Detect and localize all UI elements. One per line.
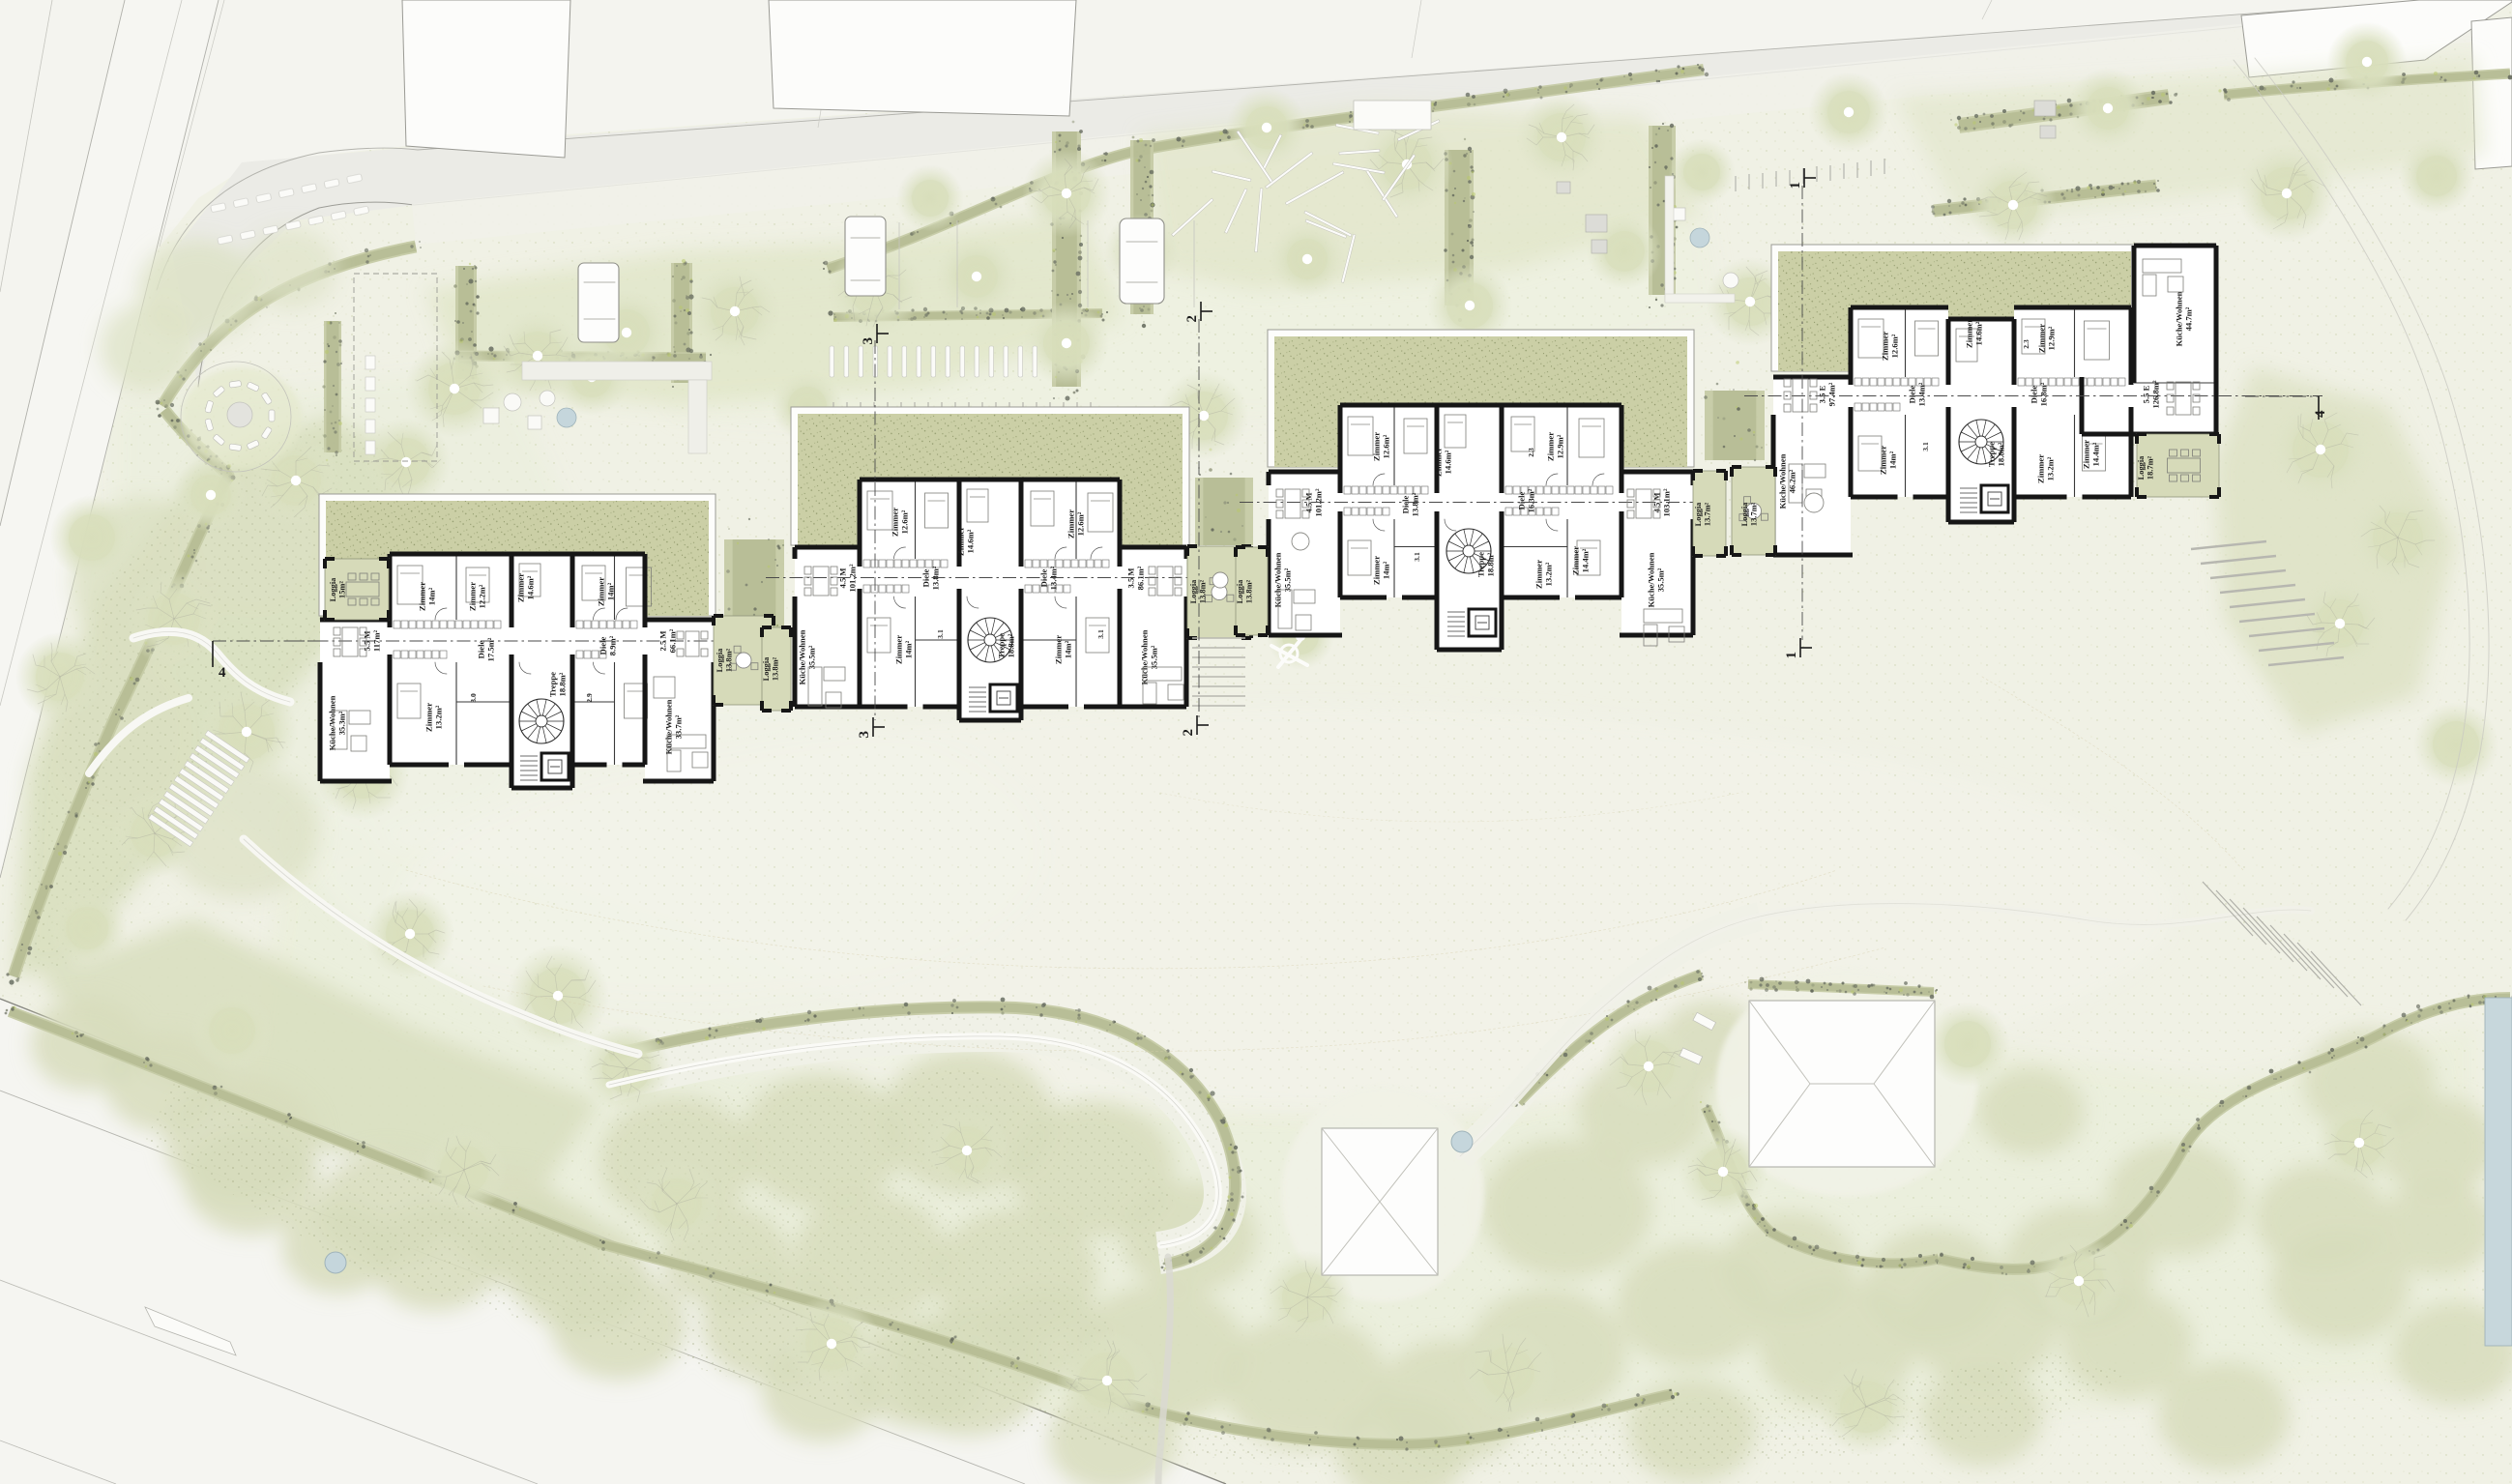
svg-text:13.8m²: 13.8m² xyxy=(725,648,734,672)
svg-text:Zimmer: Zimmer xyxy=(468,582,478,611)
svg-text:2: 2 xyxy=(1184,315,1200,323)
svg-text:Zimmer: Zimmer xyxy=(1965,319,1974,348)
svg-text:3.5 E: 3.5 E xyxy=(1818,385,1827,403)
svg-text:2.3: 2.3 xyxy=(1527,448,1535,457)
svg-text:15m²: 15m² xyxy=(338,581,347,598)
svg-text:18.8m²: 18.8m² xyxy=(558,672,568,696)
svg-text:13.8m²: 13.8m² xyxy=(1199,579,1208,603)
svg-text:97.4m²: 97.4m² xyxy=(1827,382,1837,406)
svg-text:Zimmer: Zimmer xyxy=(424,703,434,732)
svg-text:Zimmer: Zimmer xyxy=(1534,560,1544,589)
svg-text:Zimmer: Zimmer xyxy=(894,635,904,664)
svg-text:Diele: Diele xyxy=(599,637,608,655)
svg-text:13.7m²: 13.7m² xyxy=(1704,502,1712,526)
svg-text:14.6m²: 14.6m² xyxy=(526,575,536,599)
svg-text:Zimmer: Zimmer xyxy=(1881,332,1890,361)
svg-text:3.1: 3.1 xyxy=(936,629,945,639)
svg-text:35.5m²: 35.5m² xyxy=(1283,567,1293,592)
svg-text:18.7m²: 18.7m² xyxy=(2147,455,2155,480)
svg-text:Treppe: Treppe xyxy=(997,633,1007,658)
svg-text:Küche/Wohnen: Küche/Wohnen xyxy=(1647,552,1656,607)
svg-text:13.4m²: 13.4m² xyxy=(1917,382,1927,406)
svg-text:35.5m²: 35.5m² xyxy=(1150,645,1159,669)
svg-text:12.2m²: 12.2m² xyxy=(478,584,487,608)
svg-text:13.2m²: 13.2m² xyxy=(1544,562,1554,586)
svg-text:13.8m²: 13.8m² xyxy=(1245,579,1254,603)
svg-text:2.9: 2.9 xyxy=(585,693,594,703)
svg-text:33.7m²: 33.7m² xyxy=(674,714,684,739)
svg-text:18.8m²: 18.8m² xyxy=(1007,633,1016,657)
svg-text:12.6m²: 12.6m² xyxy=(1076,511,1086,536)
svg-text:13.8m²: 13.8m² xyxy=(772,656,780,681)
svg-text:12.9m²: 12.9m² xyxy=(2047,326,2057,350)
svg-text:Loggia: Loggia xyxy=(1236,579,1244,603)
svg-text:12.6m²: 12.6m² xyxy=(1382,434,1391,458)
svg-text:14m²: 14m² xyxy=(427,587,437,605)
svg-text:Zimmer: Zimmer xyxy=(1571,546,1581,575)
svg-text:5.5 E: 5.5 E xyxy=(2142,385,2151,403)
svg-text:Zimmer: Zimmer xyxy=(1372,432,1382,461)
svg-text:Loggia: Loggia xyxy=(762,656,771,681)
svg-text:3.1: 3.1 xyxy=(1413,552,1421,562)
svg-text:Diele: Diele xyxy=(2030,386,2039,404)
svg-text:Küche/Wohnen: Küche/Wohnen xyxy=(2175,291,2184,346)
svg-text:Zimmer: Zimmer xyxy=(956,527,966,556)
svg-text:8.9m²: 8.9m² xyxy=(608,635,618,655)
svg-text:14m²: 14m² xyxy=(1064,640,1073,658)
svg-text:12.6m²: 12.6m² xyxy=(1890,334,1900,358)
svg-text:13.7m²: 13.7m² xyxy=(1750,502,1759,526)
svg-text:16.8m²: 16.8m² xyxy=(2039,382,2049,406)
svg-text:13.2m²: 13.2m² xyxy=(2046,456,2056,480)
svg-text:Diele: Diele xyxy=(1517,492,1527,510)
svg-text:Treppe: Treppe xyxy=(548,672,558,697)
svg-text:3.1: 3.1 xyxy=(1096,629,1105,639)
svg-text:Loggia: Loggia xyxy=(716,648,724,672)
svg-text:Küche/Wohnen: Küche/Wohnen xyxy=(328,695,337,750)
svg-text:Küche/Wohnen: Küche/Wohnen xyxy=(1140,629,1150,684)
svg-text:44.7m²: 44.7m² xyxy=(2184,306,2194,331)
svg-text:Loggia: Loggia xyxy=(1740,502,1749,526)
svg-text:3.1: 3.1 xyxy=(1921,442,1930,451)
svg-text:Loggia: Loggia xyxy=(1694,502,1703,526)
svg-text:Loggia: Loggia xyxy=(2137,455,2146,480)
svg-text:Zimmer: Zimmer xyxy=(891,508,900,537)
svg-text:14m²: 14m² xyxy=(1888,451,1898,469)
svg-text:Küche/Wohnen: Küche/Wohnen xyxy=(798,629,807,684)
svg-text:3: 3 xyxy=(861,337,876,345)
svg-text:14m²: 14m² xyxy=(904,640,914,658)
svg-text:18.8m²: 18.8m² xyxy=(1997,442,2006,466)
svg-text:1: 1 xyxy=(1788,182,1803,189)
svg-text:12.9m²: 12.9m² xyxy=(1556,434,1565,458)
svg-text:35.5m²: 35.5m² xyxy=(807,645,817,669)
svg-text:12.6m²: 12.6m² xyxy=(900,509,910,534)
svg-text:18.8m²: 18.8m² xyxy=(1486,552,1496,576)
svg-text:Treppe: Treppe xyxy=(1476,552,1486,577)
svg-text:4: 4 xyxy=(2313,410,2328,418)
svg-text:1: 1 xyxy=(1784,652,1799,659)
svg-text:4: 4 xyxy=(219,665,226,681)
svg-text:Zimmer: Zimmer xyxy=(2036,454,2046,483)
svg-text:2.3: 2.3 xyxy=(2022,339,2030,349)
svg-text:Loggia: Loggia xyxy=(1189,579,1198,603)
svg-text:3.0: 3.0 xyxy=(469,693,478,703)
svg-text:14m²: 14m² xyxy=(1382,561,1391,579)
svg-text:Zimmer: Zimmer xyxy=(2037,324,2047,353)
svg-text:Zimmer: Zimmer xyxy=(418,582,427,611)
svg-text:Küche/Wohnen: Küche/Wohnen xyxy=(1778,453,1788,509)
svg-text:3: 3 xyxy=(857,731,872,739)
svg-text:14.6m²: 14.6m² xyxy=(1974,321,1984,345)
svg-text:14m²: 14m² xyxy=(606,582,616,600)
svg-text:Küche/Wohnen: Küche/Wohnen xyxy=(664,699,674,754)
svg-text:Zimmer: Zimmer xyxy=(516,573,526,602)
svg-text:13.8m²: 13.8m² xyxy=(1411,492,1420,516)
svg-text:Zimmer: Zimmer xyxy=(1372,556,1382,585)
svg-text:14.4m²: 14.4m² xyxy=(1581,548,1591,572)
svg-text:Zimmer: Zimmer xyxy=(2082,440,2091,469)
svg-text:2: 2 xyxy=(1181,729,1196,737)
svg-text:4.5 M: 4.5 M xyxy=(838,567,848,588)
svg-text:14.4m²: 14.4m² xyxy=(2091,442,2101,466)
svg-text:Zimmer: Zimmer xyxy=(1546,432,1556,461)
svg-text:Loggia: Loggia xyxy=(329,577,337,601)
svg-text:14.6m²: 14.6m² xyxy=(1444,450,1453,474)
svg-text:126.8m²: 126.8m² xyxy=(2151,380,2161,408)
svg-text:Diele: Diele xyxy=(1908,386,1917,404)
svg-text:3.5 M: 3.5 M xyxy=(1126,567,1136,588)
svg-text:14.6m²: 14.6m² xyxy=(966,529,976,553)
svg-text:Diele: Diele xyxy=(1401,496,1411,514)
svg-text:Zimmer: Zimmer xyxy=(1066,509,1076,538)
svg-text:13.2m²: 13.2m² xyxy=(434,705,444,729)
svg-text:35.3m²: 35.3m² xyxy=(337,711,347,735)
svg-text:Diele: Diele xyxy=(477,641,486,659)
svg-text:Zimmer: Zimmer xyxy=(1434,448,1444,477)
svg-text:Treppe: Treppe xyxy=(1987,442,1997,467)
svg-text:35.5m²: 35.5m² xyxy=(1656,567,1666,592)
svg-text:Zimmer: Zimmer xyxy=(1054,635,1064,664)
svg-text:16.3m²: 16.3m² xyxy=(1527,488,1536,512)
svg-text:Zimmer: Zimmer xyxy=(1879,446,1888,475)
svg-text:Zimmer: Zimmer xyxy=(597,577,606,606)
